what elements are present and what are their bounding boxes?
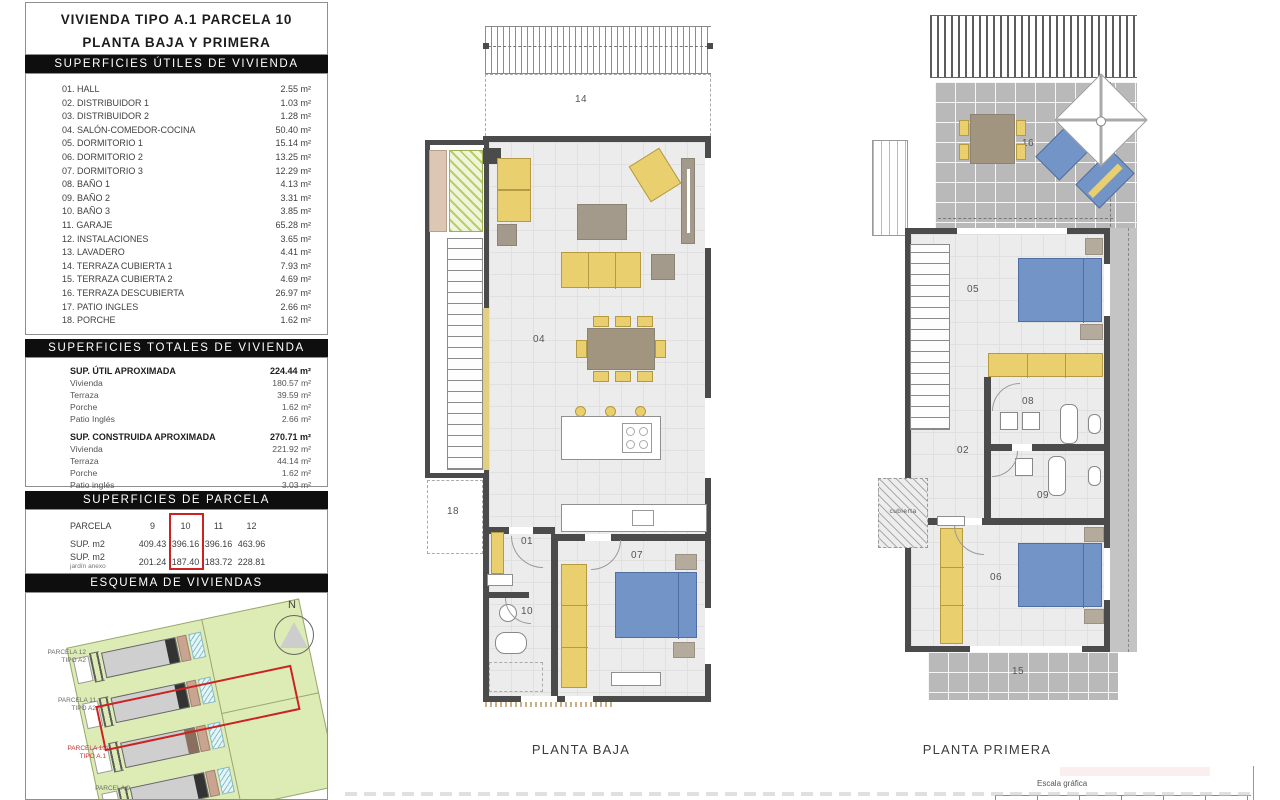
- row-value: 180.57 m²: [255, 377, 311, 389]
- sup-m2-value: 396.16: [202, 539, 235, 549]
- window: [705, 608, 711, 664]
- toilet: [495, 632, 527, 654]
- room-label: 07. DORMITORIO 3: [62, 165, 259, 179]
- kitchen-counter: [561, 504, 707, 532]
- sup-m2-value: 409.43: [136, 539, 169, 549]
- room-area-value: 4.41 m²: [259, 246, 311, 260]
- room-area-value: 3.85 m²: [259, 205, 311, 219]
- wall: [558, 534, 707, 541]
- room-area-value: 1.03 m²: [259, 97, 311, 111]
- planta-primera-plan: 16 05 08 02 09 cubierta: [862, 8, 1162, 778]
- room-label: 15. TERRAZA CUBIERTA 2: [62, 273, 259, 287]
- row-value: 2.66 m²: [255, 413, 311, 425]
- dining-chair: [615, 316, 631, 327]
- chair: [959, 144, 969, 160]
- table-row: 11. GARAJE 65.28 m²: [26, 219, 327, 233]
- table-row: 10. BAÑO 3 3.85 m²: [26, 205, 327, 219]
- sofa-module: [497, 190, 531, 222]
- room-area-value: 1.62 m²: [259, 314, 311, 328]
- room-area-value: 4.13 m²: [259, 178, 311, 192]
- room-area-value: 4.69 m²: [259, 273, 311, 287]
- door-opening: [1012, 444, 1032, 451]
- compass-icon: [274, 615, 314, 655]
- table-row: 01. HALL 2.55 m²: [26, 83, 327, 97]
- bed: [1018, 543, 1102, 607]
- parcela-table: PARCELA 9101112 SUP. m2 409.43396.16396.…: [25, 509, 328, 574]
- row-label: Patio inglés: [70, 479, 255, 491]
- table-row: 16. TERRAZA DESCUBIERTA 26.97 m²: [26, 287, 327, 301]
- row-label: Porche: [70, 401, 255, 413]
- faint-watermark: [1060, 767, 1210, 776]
- room-label: 04. SALÓN-COMEDOR-COCINA: [62, 124, 259, 138]
- parcela-number: 9: [136, 521, 169, 531]
- room-label: 11. GARAJE: [62, 219, 259, 233]
- cooktop: [622, 423, 652, 453]
- bed: [615, 572, 697, 638]
- covered-terrace-outline: [485, 74, 711, 136]
- table-row: 03. DISTRIBUIDOR 2 1.28 m²: [26, 110, 327, 124]
- room-number: 08: [1022, 396, 1034, 407]
- room-label: 18. PORCHE: [62, 314, 259, 328]
- sink: [1022, 412, 1040, 430]
- bedside-table: [1080, 324, 1103, 340]
- pergola-post: [707, 43, 713, 49]
- row-value: 1.62 m²: [255, 401, 311, 413]
- room-label: 14. TERRAZA CUBIERTA 1: [62, 260, 259, 274]
- bedside-table: [1084, 609, 1104, 624]
- row-sublabel: jardín anexo: [70, 562, 136, 571]
- room-label: 05. DORMITORIO 1: [62, 137, 259, 151]
- room-area-value: 50.40 m²: [259, 124, 311, 138]
- table-row: 08. BAÑO 1 4.13 m²: [26, 178, 327, 192]
- toilet: [1088, 466, 1101, 486]
- room-area-value: 65.28 m²: [259, 219, 311, 233]
- table-row: Vivienda 221.92 m²: [26, 443, 327, 455]
- title-line-2: PLANTA BAJA Y PRIMERA: [26, 31, 327, 54]
- bedside-table: [1085, 238, 1103, 255]
- group-total: 224.44 m²: [255, 365, 311, 377]
- jardin-anexo-value: 201.24: [136, 557, 169, 567]
- dining-chair: [637, 316, 653, 327]
- door-opening: [509, 527, 533, 534]
- room-number: 07: [631, 550, 643, 561]
- table-row: Terraza 44.14 m²: [26, 455, 327, 467]
- room-label: 17. PATIO INGLES: [62, 301, 259, 315]
- sup-m2-value: 463.96: [235, 539, 268, 549]
- dining-chair: [593, 316, 609, 327]
- wall: [551, 534, 558, 702]
- table-row: 05. DORMITORIO 1 15.14 m²: [26, 137, 327, 151]
- row-label: Vivienda: [70, 377, 255, 389]
- toilet: [1088, 414, 1101, 434]
- plan-caption: PLANTA BAJA: [425, 742, 737, 757]
- bathtub: [1048, 456, 1066, 496]
- pool: [217, 767, 235, 795]
- row-label: Patio Inglés: [70, 413, 255, 425]
- parcela-10-label: PARCELA 10 TIPO A.1: [54, 745, 106, 761]
- terrace-dashed-line: [938, 218, 1113, 219]
- room-label: 12. INSTALACIONES: [62, 233, 259, 247]
- sheet-border-line: [1253, 766, 1254, 800]
- bath-shelf: [487, 574, 513, 586]
- superficies-utiles-table: 01. HALL 2.55 m² 02. DISTRIBUIDOR 1 1.03…: [25, 73, 328, 335]
- pergola-beam: [483, 46, 713, 47]
- sofa-module: [497, 158, 531, 190]
- room-label: 01. HALL: [62, 83, 259, 97]
- dining-chair: [593, 371, 609, 382]
- pool: [188, 632, 206, 660]
- room-label: 09. BAÑO 2: [62, 192, 259, 206]
- bedside-table: [1084, 527, 1104, 542]
- table-row: 18. PORCHE 1.62 m²: [26, 314, 327, 328]
- stair-rail: [483, 308, 489, 470]
- highlighted-parcel-column: [169, 513, 204, 570]
- row-label: Terraza: [70, 455, 255, 467]
- tv-sideboard: [681, 158, 695, 244]
- parcela-col-label: PARCELA: [70, 522, 136, 531]
- room-area-value: 2.66 m²: [259, 301, 311, 315]
- plan-caption: PLANTA PRIMERA: [862, 742, 1112, 757]
- wardrobe: [561, 564, 587, 688]
- title-block: VIVIENDA TIPO A.1 PARCELA 10 PLANTA BAJA…: [25, 2, 328, 55]
- row-value: 221.92 m²: [255, 443, 311, 455]
- parcela-12-label: PARCELA 12 TIPO A2: [34, 649, 86, 665]
- table-row: 06. DORMITORIO 2 13.25 m²: [26, 151, 327, 165]
- wardrobe: [940, 528, 963, 644]
- room-number: 05: [967, 284, 979, 295]
- table-row: 15. TERRAZA CUBIERTA 2 4.69 m²: [26, 273, 327, 287]
- room-label: 10. BAÑO 3: [62, 205, 259, 219]
- section-header-esquema: ESQUEMA DE VIVIENDAS: [25, 574, 328, 592]
- group-title: SUP. CONSTRUIDA APROXIMADA: [70, 431, 255, 443]
- dining-chair: [615, 371, 631, 382]
- chair: [1016, 144, 1026, 160]
- room-number: 18: [447, 506, 459, 517]
- bathtub: [1060, 404, 1078, 444]
- room-area-value: 1.28 m²: [259, 110, 311, 124]
- room-label: 08. BAÑO 1: [62, 178, 259, 192]
- escala-grafica-label: Escala gráfica: [1037, 779, 1087, 788]
- parcela-11-label: PARCELA 11 TIPO A2: [44, 697, 96, 713]
- room-area-value: 15.14 m²: [259, 137, 311, 151]
- pergola: [930, 15, 1137, 78]
- section-header-superficies-utiles: SUPERFICIES ÚTILES DE VIVIENDA: [25, 55, 328, 73]
- esquema-site-plan: PARCELA 12 TIPO A2 PARCELA 11 TIPO A2 PA…: [25, 592, 328, 800]
- room-area-value: 12.29 m²: [259, 165, 311, 179]
- room-area-value: 13.25 m²: [259, 151, 311, 165]
- jardin-anexo-value: 228.81: [235, 557, 268, 567]
- chair: [959, 120, 969, 136]
- bed: [1018, 258, 1102, 322]
- room-area-value: 7.93 m²: [259, 260, 311, 274]
- table-row: 07. DORMITORIO 3 12.29 m²: [26, 165, 327, 179]
- jardin-anexo-value: 183.72: [202, 557, 235, 567]
- window: [1104, 264, 1110, 316]
- table-row: 09. BAÑO 2 3.31 m²: [26, 192, 327, 206]
- row-label: Terraza: [70, 389, 255, 401]
- coffee-table: [577, 204, 627, 240]
- room-area-value: 2.55 m²: [259, 83, 311, 97]
- fine-print-line: [345, 792, 1250, 796]
- total-group-header: SUP. CONSTRUIDA APROXIMADA 270.71 m²: [26, 431, 327, 443]
- kitchen-island: [561, 416, 661, 460]
- room-label: 02. DISTRIBUIDOR 1: [62, 97, 259, 111]
- outdoor-table: [970, 114, 1015, 164]
- title-line-1: VIVIENDA TIPO A.1 PARCELA 10: [26, 8, 327, 31]
- room-area-value: 26.97 m²: [259, 287, 311, 301]
- room-number: 15: [1012, 666, 1024, 677]
- exterior-paving: [485, 702, 615, 707]
- side-table: [497, 224, 517, 246]
- roof-dashed-line: [1128, 228, 1129, 652]
- room-label: 13. LAVADERO: [62, 246, 259, 260]
- room-number: 09: [1037, 490, 1049, 501]
- group-title: SUP. ÚTIL APROXIMADA: [70, 365, 255, 377]
- window: [705, 158, 711, 248]
- row-label: SUP. m2 jardín anexo: [70, 553, 136, 571]
- row-value: 44.14 m²: [255, 455, 311, 467]
- total-group-header: SUP. ÚTIL APROXIMADA 224.44 m²: [26, 365, 327, 377]
- pergola: [485, 26, 711, 74]
- room-label: 16. TERRAZA DESCUBIERTA: [62, 287, 259, 301]
- parcela-number: 11: [202, 521, 235, 531]
- group-total: 270.71 m²: [255, 431, 311, 443]
- window: [705, 398, 711, 478]
- room-label: 06. DORMITORIO 2: [62, 151, 259, 165]
- superficies-totales-table: SUP. ÚTIL APROXIMADA 224.44 m² Vivienda …: [25, 357, 328, 487]
- hall-closet: [491, 532, 504, 574]
- chair: [1016, 120, 1026, 136]
- bench: [611, 672, 661, 686]
- wall: [984, 377, 991, 525]
- wall: [991, 444, 1104, 451]
- row-label: SUP. m2: [70, 540, 136, 549]
- room-number: 06: [990, 572, 1002, 583]
- side-table: [651, 254, 675, 280]
- north-label: N: [288, 599, 296, 611]
- table-row: Vivienda 180.57 m²: [26, 377, 327, 389]
- section-header-superficies-totales: SUPERFICIES TOTALES DE VIVIENDA: [25, 339, 328, 357]
- table-row: Patio inglés 3.03 m²: [26, 479, 327, 491]
- table-row: 17. PATIO INGLES 2.66 m²: [26, 301, 327, 315]
- staircase: [447, 238, 483, 470]
- dining-chair: [637, 371, 653, 382]
- row-label: Porche: [70, 467, 255, 479]
- cubierta-label: cubierta: [878, 508, 928, 515]
- window: [957, 228, 1067, 234]
- dining-chair: [655, 340, 666, 358]
- parcela-number: 12: [235, 521, 268, 531]
- table-row: Porche 1.62 m²: [26, 401, 327, 413]
- wardrobe: [988, 353, 1103, 377]
- table-row: Terraza 39.59 m²: [26, 389, 327, 401]
- garage-hatch-area: [449, 150, 483, 232]
- info-panel: VIVIENDA TIPO A.1 PARCELA 10 PLANTA BAJA…: [25, 0, 328, 800]
- parcela-9-label: PARCELA 9: [78, 785, 130, 793]
- pergola-post: [483, 43, 489, 49]
- table-row: 12. INSTALACIONES 3.65 m²: [26, 233, 327, 247]
- garage-storage: [429, 150, 447, 232]
- table-row: Patio Inglés 2.66 m²: [26, 413, 327, 425]
- window: [1104, 548, 1110, 600]
- row-value: 39.59 m²: [255, 389, 311, 401]
- side-roof-band: [1110, 228, 1137, 652]
- patio-ingles-outline: [427, 480, 483, 554]
- bedside-table: [673, 642, 695, 658]
- table-row: 14. TERRAZA CUBIERTA 1 7.93 m²: [26, 260, 327, 274]
- balcony-railing: [872, 140, 908, 236]
- table-row: 02. DISTRIBUIDOR 1 1.03 m²: [26, 97, 327, 111]
- table-row: 13. LAVADERO 4.41 m²: [26, 246, 327, 260]
- row-value: 3.03 m²: [255, 479, 311, 491]
- dining-table: [587, 328, 655, 370]
- row-label: Vivienda: [70, 443, 255, 455]
- sink: [1000, 412, 1018, 430]
- room-label: 03. DISTRIBUIDOR 2: [62, 110, 259, 124]
- row-value: 1.62 m²: [255, 467, 311, 479]
- section-header-superficies-parcela: SUPERFICIES DE PARCELA: [25, 491, 328, 509]
- table-row: Porche 1.62 m²: [26, 467, 327, 479]
- planta-baja-plan: 14 18 04: [425, 8, 737, 778]
- kitchen-sink: [632, 510, 654, 526]
- bedside-table: [675, 554, 697, 570]
- room-number: 02: [957, 445, 969, 456]
- room-area-value: 3.31 m²: [259, 192, 311, 206]
- shower-tray: [489, 662, 543, 692]
- sofa: [561, 252, 641, 288]
- table-row: 04. SALÓN-COMEDOR-COCINA 50.40 m²: [26, 124, 327, 138]
- dining-chair: [576, 340, 587, 358]
- sink: [1015, 458, 1033, 476]
- room-number: 04: [533, 334, 545, 345]
- staircase: [910, 244, 950, 430]
- room-area-value: 3.65 m²: [259, 233, 311, 247]
